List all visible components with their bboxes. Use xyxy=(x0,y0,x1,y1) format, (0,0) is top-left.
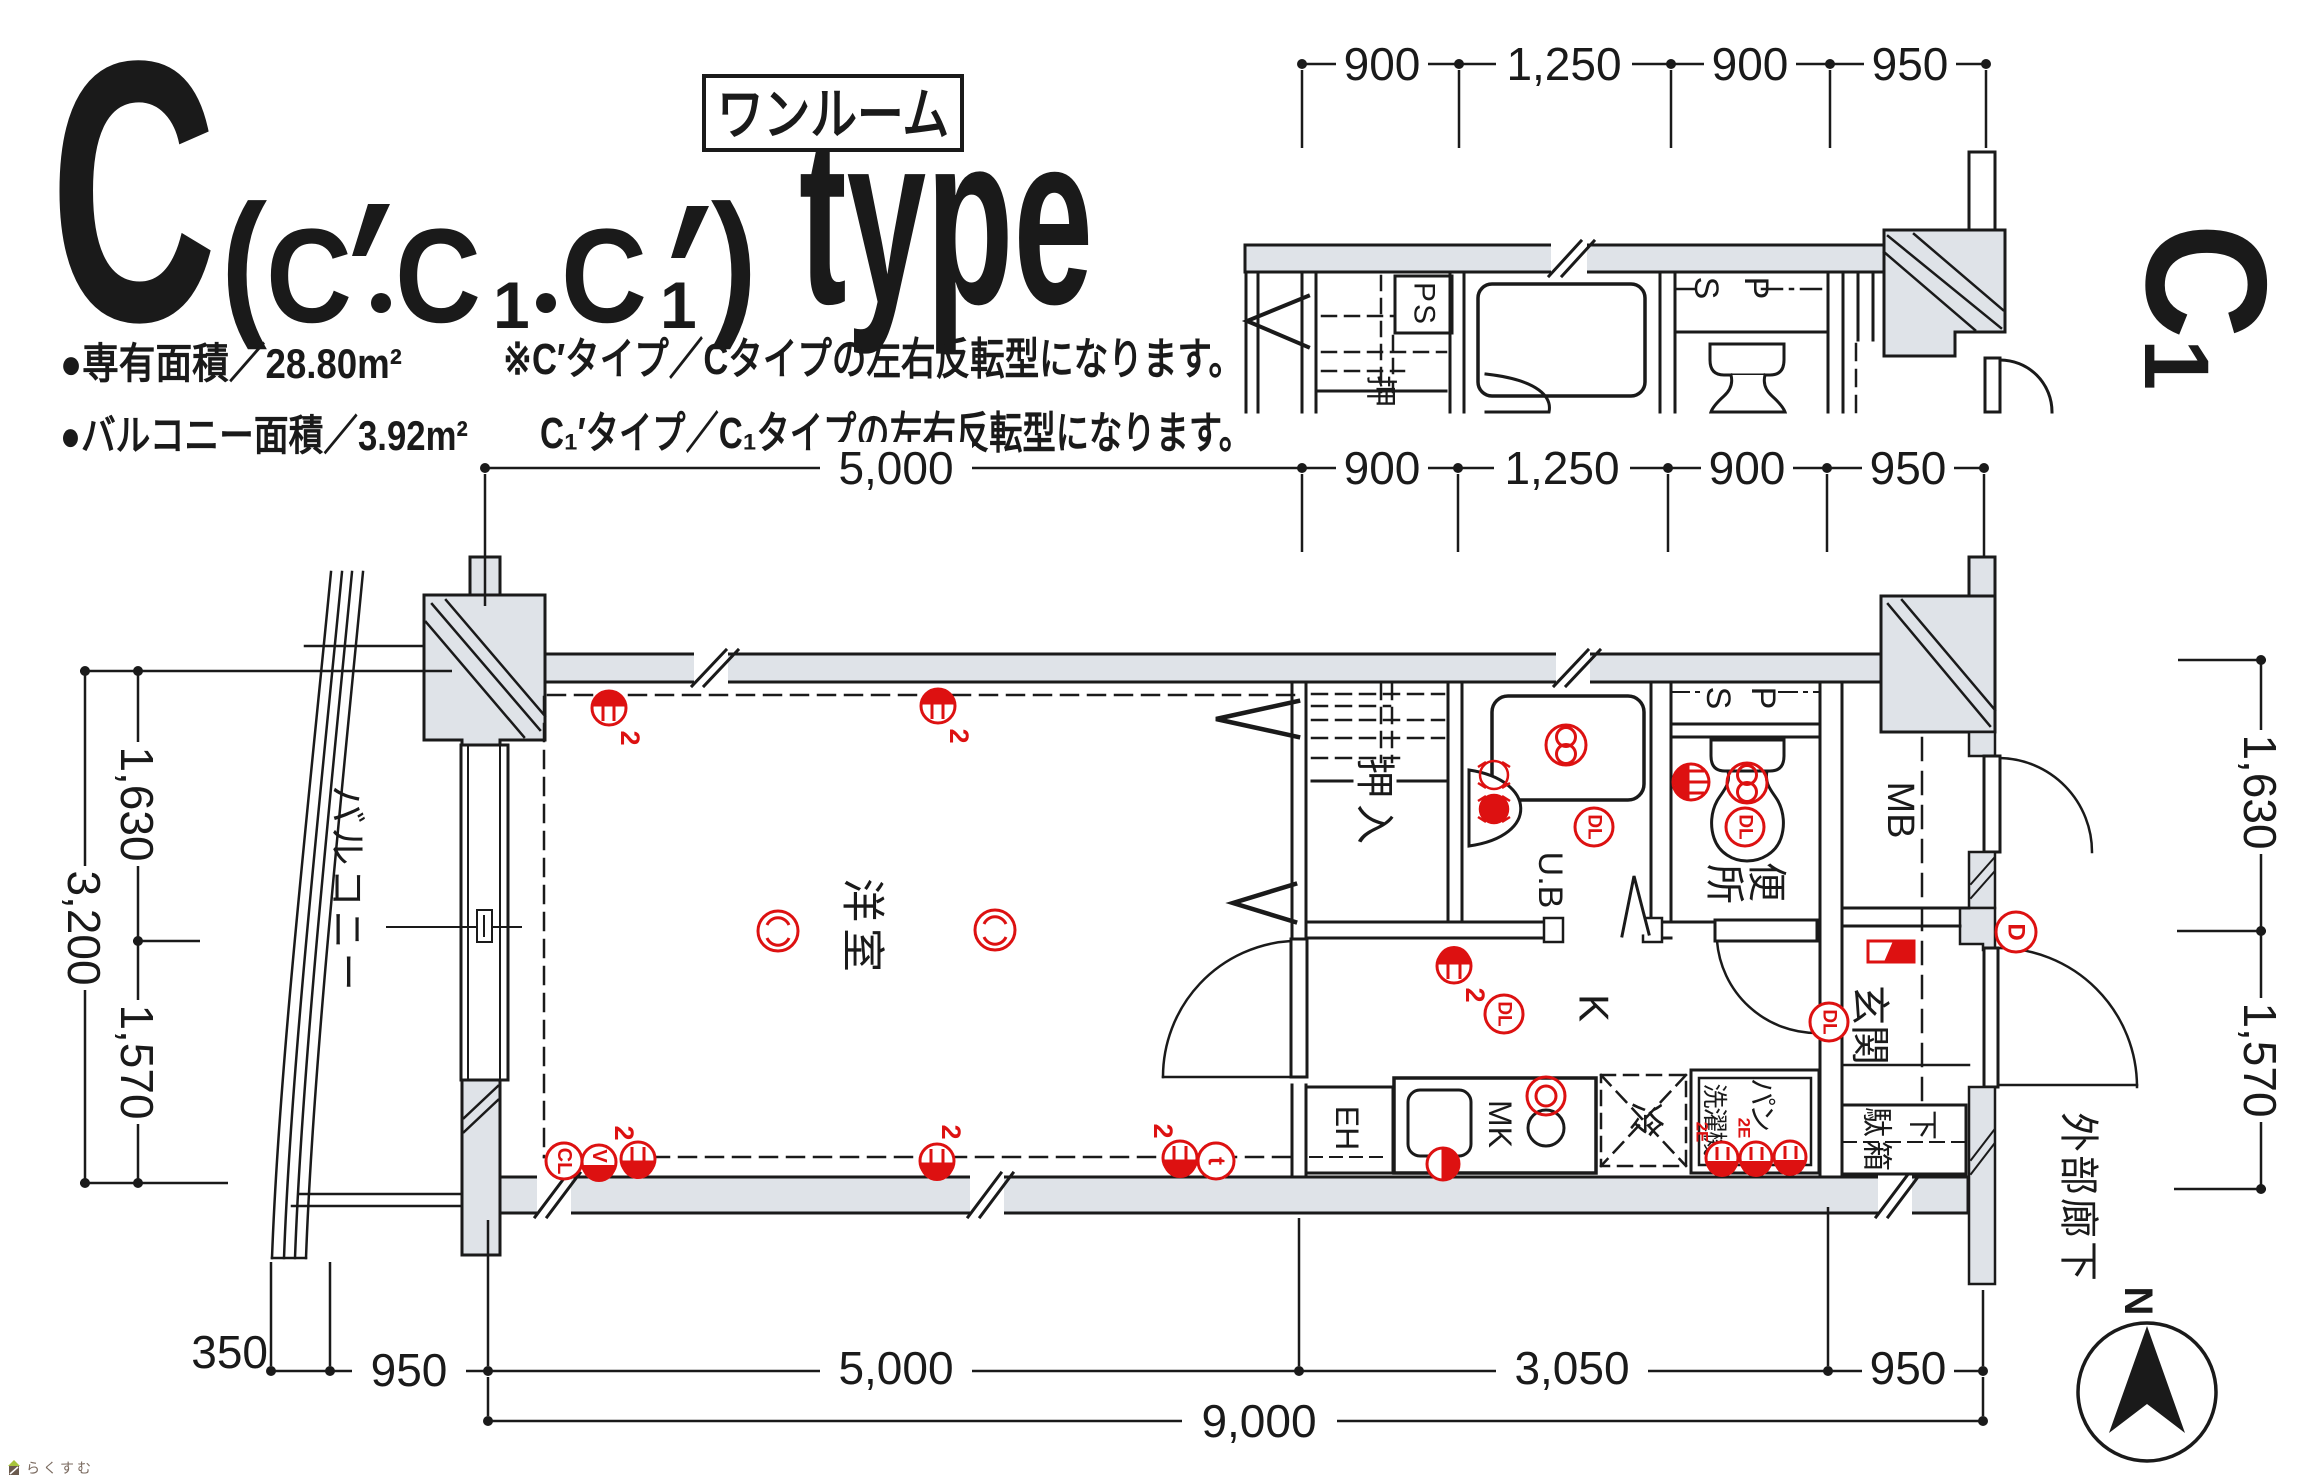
svg-text:所: 所 xyxy=(1702,864,1746,904)
svg-text:バルコニー: バルコニー xyxy=(325,785,367,994)
svg-text:パ: パ xyxy=(1747,1078,1778,1106)
svg-text:950: 950 xyxy=(1870,442,1947,494)
svg-text:2: 2 xyxy=(1460,987,1490,1002)
svg-text:1,250: 1,250 xyxy=(1504,442,1619,494)
svg-text:1,250: 1,250 xyxy=(1506,38,1621,90)
svg-text:MB: MB xyxy=(1879,782,1921,839)
svg-text:D: D xyxy=(2003,923,2030,940)
svg-text:●専有面積／28.80m²: ●専有面積／28.80m² xyxy=(60,340,402,387)
svg-text:押: 押 xyxy=(1363,375,1399,407)
svg-text:MK: MK xyxy=(1482,1100,1518,1148)
svg-text:1,630: 1,630 xyxy=(111,746,163,861)
svg-text:駄: 駄 xyxy=(1860,1107,1893,1137)
svg-text:CL: CL xyxy=(553,1148,575,1175)
svg-text:下: 下 xyxy=(1906,1110,1939,1140)
svg-text:5,000: 5,000 xyxy=(838,442,953,494)
svg-text:便: 便 xyxy=(1744,862,1788,902)
svg-text:1,570: 1,570 xyxy=(2234,1002,2286,1117)
svg-text:9,000: 9,000 xyxy=(1201,1395,1316,1447)
svg-text:950: 950 xyxy=(371,1344,448,1396)
svg-text:1: 1 xyxy=(660,268,697,342)
svg-text:EH: EH xyxy=(1329,1106,1365,1150)
svg-text:DL: DL xyxy=(1494,1001,1515,1027)
svg-text:2E: 2E xyxy=(1693,1122,1712,1143)
svg-text:t: t xyxy=(1203,1157,1230,1165)
svg-text:2: 2 xyxy=(1148,1123,1178,1138)
svg-text:U.B: U.B xyxy=(1531,852,1569,909)
svg-text:C: C xyxy=(395,202,481,351)
svg-text:PS: PS xyxy=(1408,282,1441,326)
svg-text:●バルコニー面積／3.92m²: ●バルコニー面積／3.92m² xyxy=(60,412,468,459)
svg-text:外部廊下: 外部廊下 xyxy=(2056,1112,2100,1284)
svg-text:1,630: 1,630 xyxy=(2234,734,2286,849)
svg-text:DL: DL xyxy=(1819,1009,1840,1035)
svg-text:350: 350 xyxy=(191,1326,268,1378)
svg-text:2E: 2E xyxy=(1735,1118,1754,1139)
svg-text:900: 900 xyxy=(1712,38,1789,90)
svg-text:箱: 箱 xyxy=(1860,1141,1893,1171)
svg-text:950: 950 xyxy=(1870,1342,1947,1394)
svg-text:2: 2 xyxy=(615,730,645,745)
svg-text:C: C xyxy=(266,202,352,351)
svg-text:3,200: 3,200 xyxy=(58,870,110,985)
svg-text:900: 900 xyxy=(1709,442,1786,494)
svg-text:DL: DL xyxy=(1584,814,1605,840)
svg-text:S: S xyxy=(1699,687,1737,710)
svg-text:らくすむ: らくすむ xyxy=(26,1460,94,1476)
svg-text:1: 1 xyxy=(493,268,530,342)
svg-text:950: 950 xyxy=(1872,38,1949,90)
svg-text:押入: 押入 xyxy=(1352,758,1396,850)
svg-text:(: ( xyxy=(221,171,268,350)
svg-text:DL: DL xyxy=(1735,814,1756,840)
svg-text:洋室: 洋室 xyxy=(838,878,887,978)
svg-text:※C′タイプ／Cタイプの左右反転型になります。: ※C′タイプ／Cタイプの左右反転型になります。 xyxy=(503,335,1243,384)
svg-text:2: 2 xyxy=(609,1125,639,1140)
svg-text:900: 900 xyxy=(1344,442,1421,494)
svg-text:2: 2 xyxy=(944,728,974,743)
svg-text:1,570: 1,570 xyxy=(111,1004,163,1119)
svg-text:洗: 洗 xyxy=(1700,1083,1728,1108)
svg-text:V: V xyxy=(588,1149,610,1163)
svg-text:C: C xyxy=(2110,223,2302,339)
svg-text:N: N xyxy=(2116,1287,2160,1316)
svg-text:3,050: 3,050 xyxy=(1514,1342,1629,1394)
svg-text:900: 900 xyxy=(1344,38,1421,90)
svg-text:): ) xyxy=(711,171,757,350)
svg-text:1: 1 xyxy=(2125,339,2227,390)
svg-text:冷: 冷 xyxy=(1626,1102,1667,1138)
svg-text:玄関: 玄関 xyxy=(1847,985,1891,1065)
svg-text:ワンルーム: ワンルーム xyxy=(717,83,949,146)
svg-text:C: C xyxy=(561,202,647,351)
svg-text:2: 2 xyxy=(936,1124,966,1139)
svg-text:P: P xyxy=(1744,687,1782,710)
svg-text:5,000: 5,000 xyxy=(838,1342,953,1394)
svg-text:K: K xyxy=(1571,994,1618,1022)
